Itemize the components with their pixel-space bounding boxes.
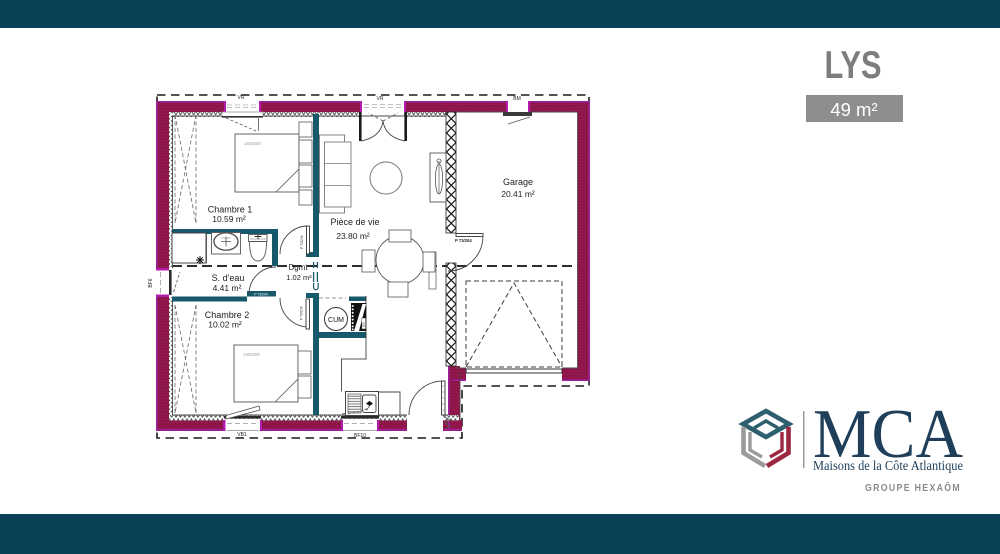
svg-text:BM: BM	[513, 96, 521, 102]
svg-text:VR: VR	[377, 96, 384, 102]
svg-text:10.59 m²: 10.59 m²	[212, 214, 246, 224]
svg-text:Chambre 1: Chambre 1	[208, 205, 253, 215]
svg-text:Chambre 2: Chambre 2	[205, 310, 250, 320]
svg-text:S. d'eau: S. d'eau	[212, 273, 245, 283]
svg-text:P 73/204: P 73/204	[254, 292, 268, 296]
svg-text:VR: VR	[238, 95, 245, 101]
svg-text:LYS: LYS	[825, 44, 882, 87]
svg-text:1.02 m²: 1.02 m²	[286, 273, 312, 282]
svg-text:10.02 m²: 10.02 m²	[208, 320, 242, 330]
svg-text:GROUPE HEXAÔM: GROUPE HEXAÔM	[865, 481, 961, 494]
svg-text:P 73/204: P 73/204	[300, 235, 304, 249]
svg-text:BF10: BF10	[354, 433, 366, 439]
svg-text:49 m²: 49 m²	[830, 99, 877, 120]
svg-text:P 73/204: P 73/204	[455, 238, 472, 243]
svg-text:P 73/204: P 73/204	[300, 306, 304, 320]
svg-text:Maisons de la Côte Atlantique: Maisons de la Côte Atlantique	[813, 458, 963, 473]
svg-text:140X200: 140X200	[243, 352, 260, 357]
svg-text:4.41 m²: 4.41 m²	[213, 283, 242, 293]
svg-text:VB1: VB1	[237, 432, 247, 438]
svg-text:BF6: BF6	[148, 278, 154, 287]
svg-text:Dgmt: Dgmt	[288, 263, 308, 272]
svg-text:Garage: Garage	[503, 177, 533, 187]
svg-text:140X200: 140X200	[244, 141, 261, 146]
svg-text:600: 600	[361, 322, 365, 327]
svg-text:20.41 m²: 20.41 m²	[501, 189, 535, 199]
svg-text:Pièce de vie: Pièce de vie	[330, 217, 379, 227]
svg-text:CUM: CUM	[328, 317, 344, 324]
svg-text:23.80 m²: 23.80 m²	[336, 231, 370, 241]
